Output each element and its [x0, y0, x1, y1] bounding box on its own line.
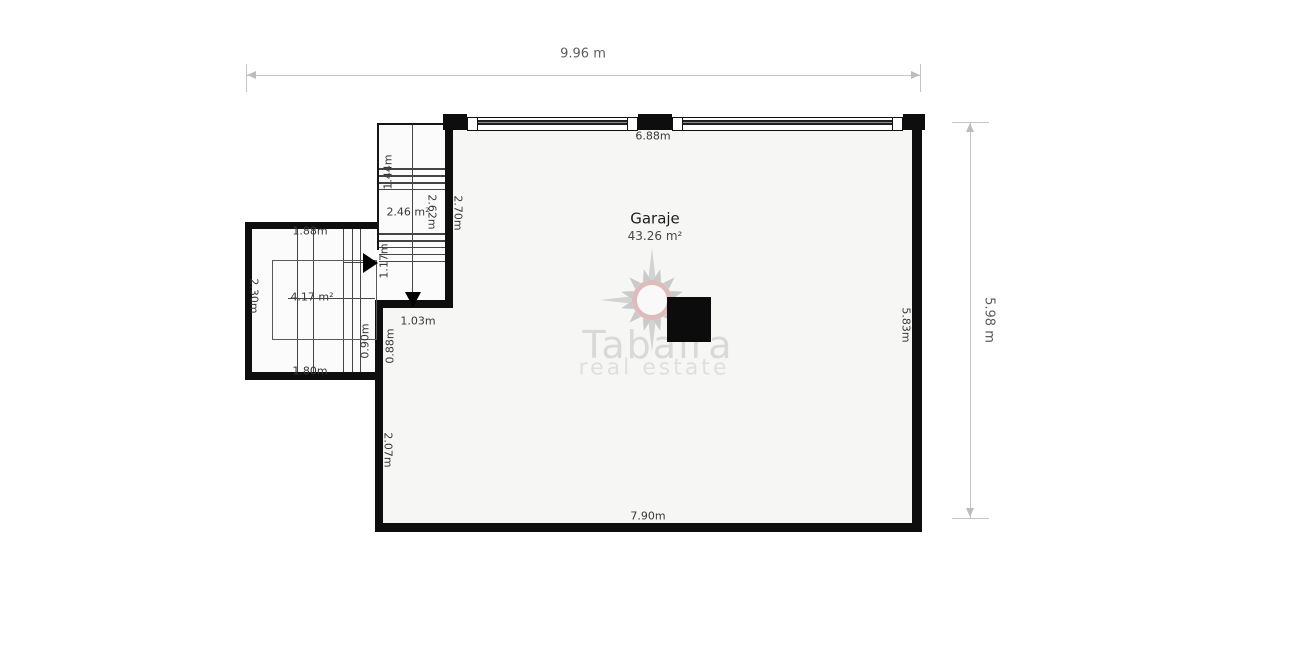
window-frame-cap: [672, 118, 683, 130]
dim-top-arrow-left-icon: [247, 71, 256, 79]
dim-overall-height-label: 5.98 m: [983, 297, 996, 343]
pillar: [667, 297, 711, 342]
left-room-direction-stem: [344, 262, 364, 263]
dim-stair-lower-flight: 1.17m: [379, 243, 390, 278]
garage-area-label: 43.26 m²: [628, 230, 683, 242]
dim-left-room-side: 2.30m: [249, 278, 260, 313]
window-frame-cap: [467, 118, 478, 130]
wall-right: [912, 116, 922, 532]
stair-direction-arrow-icon: [405, 292, 421, 307]
dim-overall-width-label: 9.96 m: [560, 48, 606, 61]
dim-garage-right-inner: 5.83m: [901, 307, 912, 342]
watermark-subtitle: real estate: [579, 356, 730, 381]
dim-right-line: [970, 122, 971, 518]
stair-direction-stem: [412, 150, 413, 292]
dim-right-arrow-bottom-icon: [966, 508, 974, 517]
dim-garage-top-inner: 6.88m: [635, 131, 670, 142]
stairwell-wall-left: [377, 123, 379, 250]
left-room-direction-arrow-icon: [363, 253, 378, 273]
dim-garage-bottom-inner: 7.90m: [630, 511, 665, 522]
dim-left-room-top: 1.88m: [292, 226, 327, 237]
dim-stair-height: 2.70m: [453, 195, 464, 230]
stairwell-area-label: 2.46 m²: [386, 207, 429, 218]
window-top-left: [467, 117, 638, 131]
dim-right-arrow-top-icon: [966, 123, 974, 132]
dim-wall-segment-left: 0.90m: [360, 323, 371, 358]
wall-bottom: [375, 523, 922, 532]
window-glazing: [682, 120, 893, 125]
window-glazing: [477, 120, 628, 125]
window-glazing-line: [477, 122, 628, 123]
dim-wall-segment-right: 0.88m: [385, 328, 396, 363]
floor-plan: Tabaira real estate: [0, 0, 1300, 650]
window-frame-cap: [627, 118, 638, 130]
dim-top-tick-right: [920, 64, 921, 92]
wall-top-pier: [638, 114, 672, 130]
dim-top-arrow-right-icon: [911, 71, 920, 79]
window-top-right: [672, 117, 903, 131]
stairwell-wall-top: [377, 123, 445, 125]
dim-stair-opening: 1.03m: [400, 316, 435, 327]
window-glazing-line: [682, 122, 893, 123]
window-frame-cap: [892, 118, 903, 130]
dim-left-room-bottom: 1.80m: [292, 366, 327, 377]
left-room-area-label: 4.17 m²: [290, 292, 333, 303]
dim-right-tick-bottom: [952, 518, 989, 519]
dim-stair-upper-flight: 1.44m: [383, 154, 394, 189]
dim-garage-left-lower: 2.07m: [383, 432, 394, 467]
dim-top-line: [246, 75, 920, 76]
garage-title: Garaje: [630, 212, 680, 227]
